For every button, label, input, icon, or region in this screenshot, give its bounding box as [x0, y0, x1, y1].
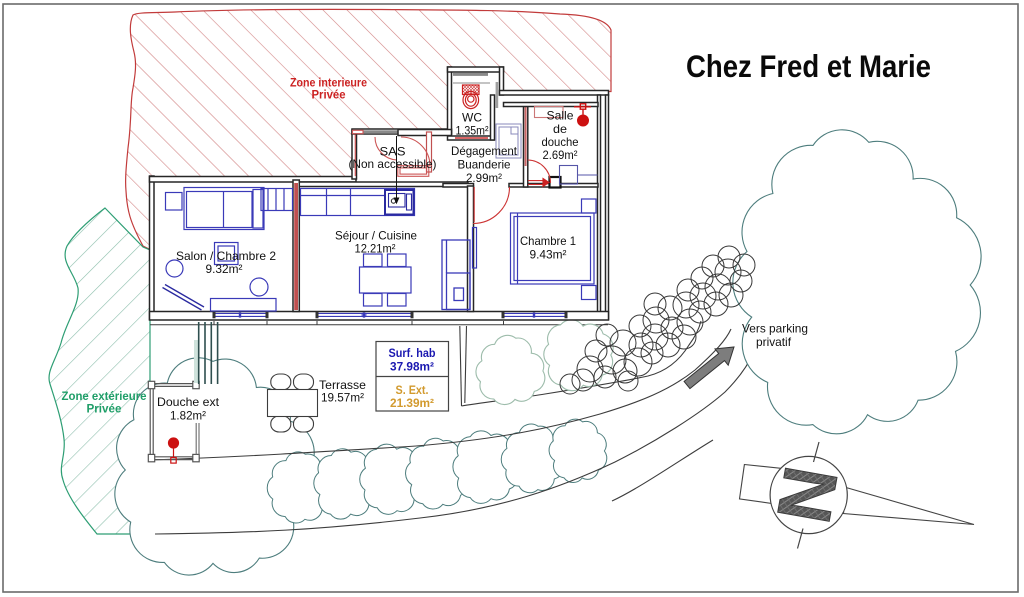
- svg-text:1.82m²: 1.82m²: [170, 409, 206, 423]
- svg-text:9.32m²: 9.32m²: [206, 262, 243, 276]
- svg-text:Vers parking: Vers parking: [742, 322, 808, 336]
- svg-text:37.98m²: 37.98m²: [390, 360, 434, 374]
- svg-text:Buanderie: Buanderie: [458, 158, 511, 172]
- svg-text:WC: WC: [462, 111, 482, 125]
- svg-text:privatif: privatif: [756, 335, 792, 349]
- svg-text:(Non accessible): (Non accessible): [349, 157, 437, 171]
- svg-text:19.57m²: 19.57m²: [321, 391, 364, 405]
- svg-text:1.35m²: 1.35m²: [456, 124, 489, 138]
- svg-text:Surf. hab: Surf. hab: [389, 346, 436, 360]
- svg-text:S. Ext.: S. Ext.: [396, 383, 429, 397]
- svg-text:Séjour / Cuisine: Séjour / Cuisine: [335, 229, 417, 243]
- svg-text:Privée: Privée: [312, 88, 346, 102]
- svg-text:Salon / Chambre 2: Salon / Chambre 2: [176, 249, 276, 263]
- svg-text:Dégagement: Dégagement: [451, 144, 518, 158]
- svg-text:21.39m²: 21.39m²: [390, 396, 434, 410]
- svg-text:Chambre 1: Chambre 1: [520, 234, 576, 248]
- svg-text:Chez Fred et Marie: Chez Fred et Marie: [686, 48, 931, 84]
- svg-text:2.99m²: 2.99m²: [466, 171, 502, 185]
- svg-text:2.69m²: 2.69m²: [543, 148, 578, 162]
- svg-text:de: de: [553, 122, 567, 136]
- svg-text:12.21m²: 12.21m²: [355, 242, 396, 256]
- svg-text:Salle: Salle: [547, 109, 574, 123]
- svg-text:Privée: Privée: [87, 402, 122, 416]
- svg-text:Douche ext: Douche ext: [157, 395, 220, 409]
- svg-text:9.43m²: 9.43m²: [530, 248, 567, 262]
